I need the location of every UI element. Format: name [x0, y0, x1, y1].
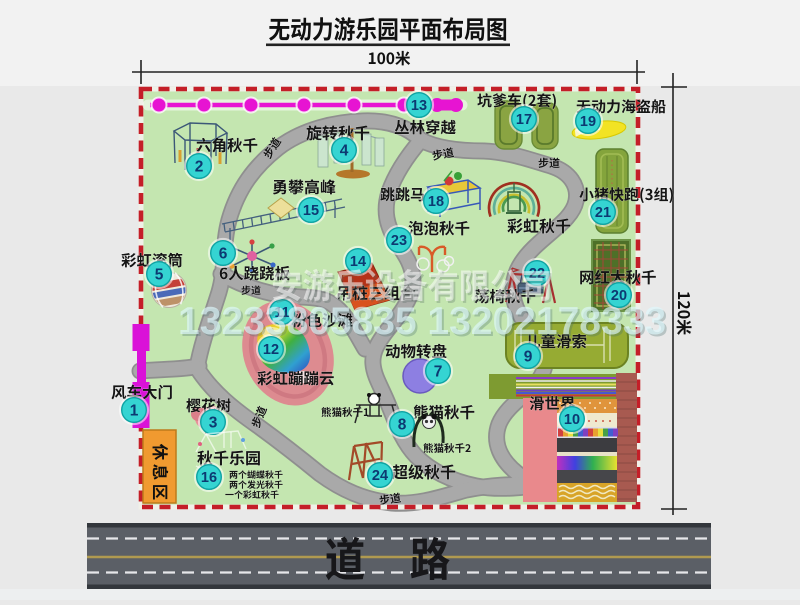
svg-text:13: 13 — [411, 98, 427, 114]
svg-text:13233805835 13202178333: 13233805835 13202178333 — [178, 300, 666, 343]
svg-text:6: 6 — [219, 245, 228, 262]
svg-text:9: 9 — [524, 348, 533, 365]
svg-text:15: 15 — [303, 203, 319, 219]
svg-text:23: 23 — [391, 233, 407, 249]
svg-text:17: 17 — [516, 112, 532, 128]
svg-text:19: 19 — [580, 114, 596, 130]
svg-text:5: 5 — [155, 266, 164, 283]
svg-text:14: 14 — [350, 254, 366, 270]
svg-text:18: 18 — [428, 194, 444, 210]
svg-text:3: 3 — [209, 414, 218, 431]
svg-text:10: 10 — [564, 412, 580, 428]
svg-text:24: 24 — [372, 468, 388, 484]
svg-text:7: 7 — [434, 363, 443, 380]
svg-text:8: 8 — [398, 416, 407, 433]
svg-text:2: 2 — [195, 158, 204, 175]
svg-text:1: 1 — [130, 402, 139, 419]
svg-text:16: 16 — [201, 470, 217, 486]
svg-text:4: 4 — [340, 142, 349, 159]
svg-text:21: 21 — [595, 205, 611, 221]
